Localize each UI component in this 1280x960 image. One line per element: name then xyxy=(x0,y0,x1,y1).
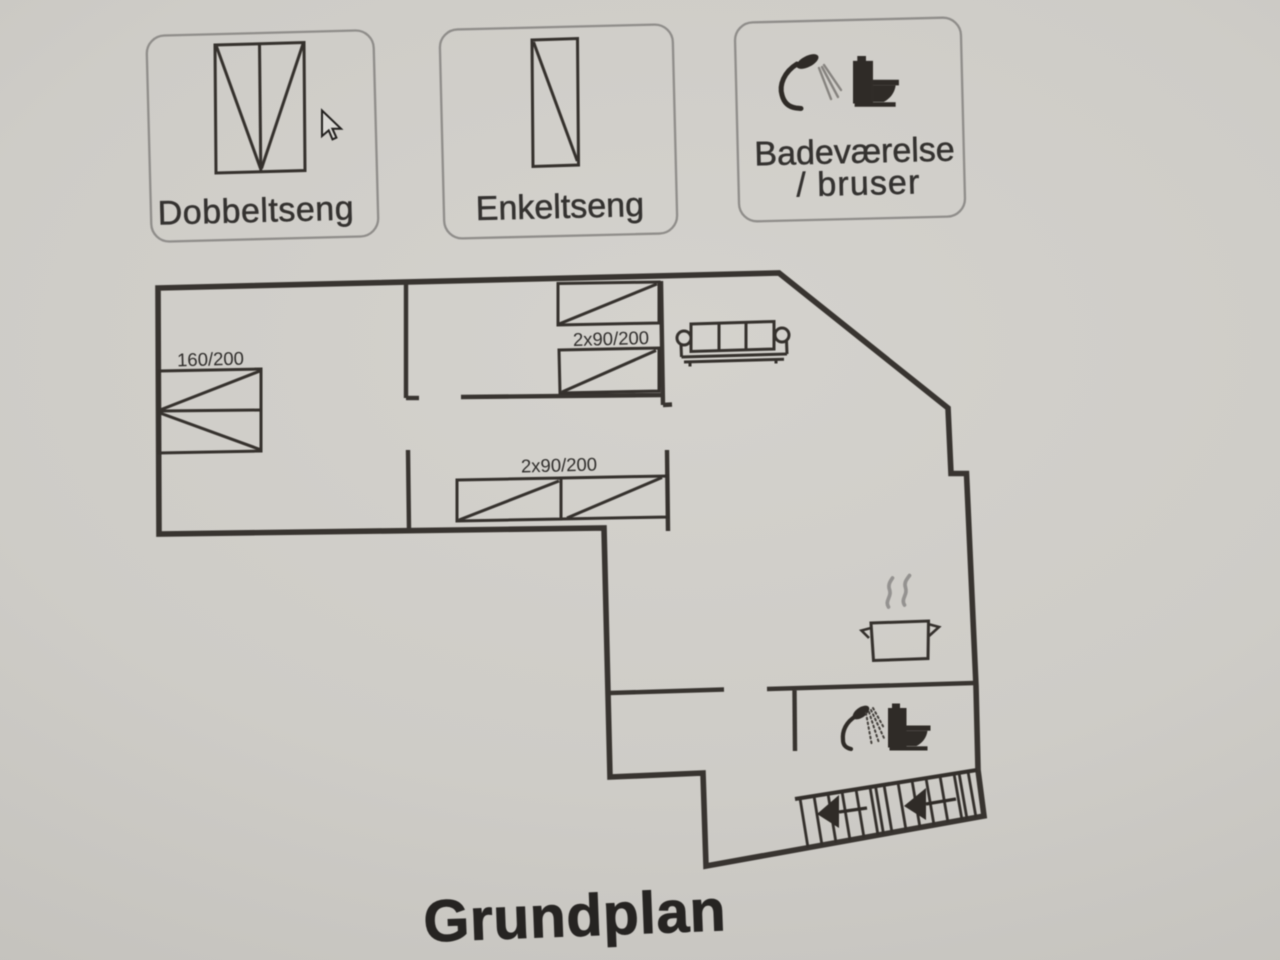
svg-text:2x90/200: 2x90/200 xyxy=(573,327,650,350)
svg-text:Enkeltseng: Enkeltseng xyxy=(475,186,644,228)
svg-text:160/200: 160/200 xyxy=(177,348,244,371)
svg-text:Dobbeltseng: Dobbeltseng xyxy=(157,189,354,232)
svg-text:Grundplan: Grundplan xyxy=(422,877,727,955)
svg-text:/ bruser: / bruser xyxy=(796,163,921,204)
svg-text:2x90/200: 2x90/200 xyxy=(521,454,598,477)
